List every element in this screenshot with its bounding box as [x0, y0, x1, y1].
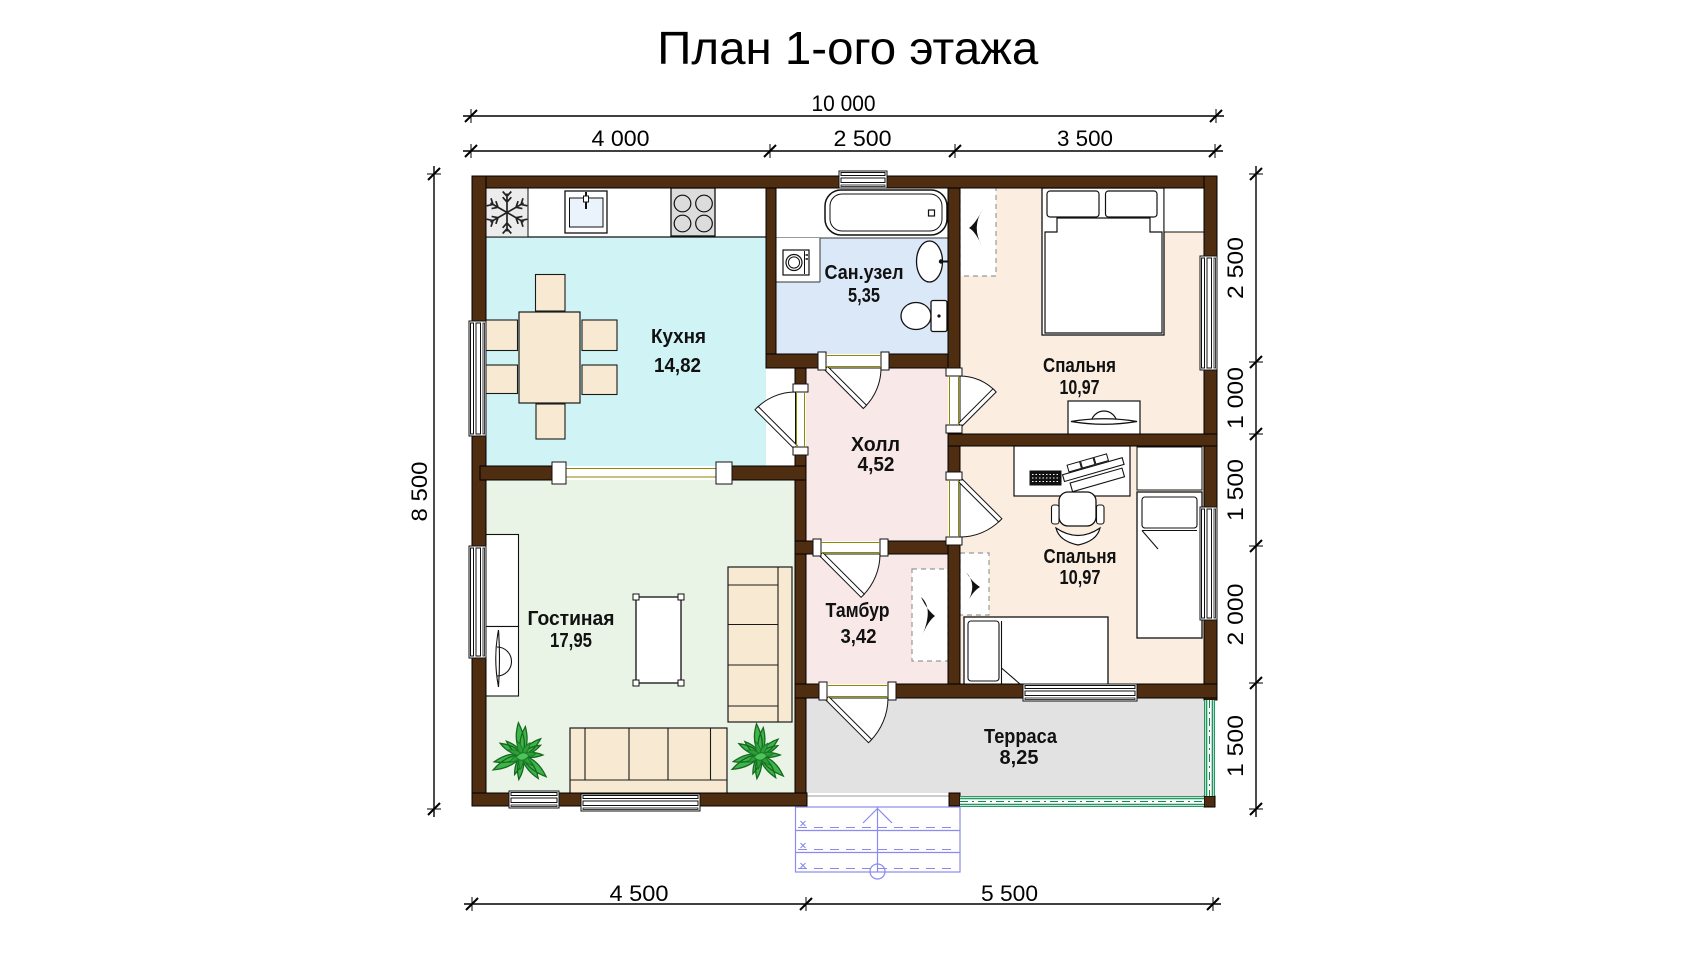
svg-text:5 500: 5 500 [981, 881, 1038, 906]
svg-text:Спальня: Спальня [1043, 355, 1116, 377]
svg-text:3 500: 3 500 [1057, 126, 1113, 151]
svg-text:10,97: 10,97 [1060, 567, 1101, 589]
svg-text:17,95: 17,95 [550, 630, 592, 652]
svg-text:План 1-ого этажа: План 1-ого этажа [657, 22, 1038, 74]
svg-text:4,52: 4,52 [858, 454, 895, 476]
svg-text:1 500: 1 500 [1223, 459, 1248, 521]
svg-text:4 500: 4 500 [610, 881, 669, 906]
svg-text:5,35: 5,35 [848, 285, 880, 307]
svg-text:Терраса: Терраса [984, 726, 1058, 748]
svg-text:Холл: Холл [851, 434, 900, 456]
svg-text:1 500: 1 500 [1223, 715, 1248, 777]
svg-text:Кухня: Кухня [651, 326, 706, 348]
svg-text:Сан.узел: Сан.узел [825, 262, 904, 284]
svg-text:2 500: 2 500 [834, 126, 892, 151]
svg-text:8 500: 8 500 [407, 462, 432, 522]
svg-text:10 000: 10 000 [812, 91, 876, 116]
svg-text:Гостиная: Гостиная [528, 608, 615, 630]
svg-text:14,82: 14,82 [654, 355, 701, 377]
svg-text:1 000: 1 000 [1223, 367, 1248, 429]
svg-text:2 000: 2 000 [1223, 584, 1248, 646]
svg-text:3,42: 3,42 [841, 626, 877, 648]
svg-text:10,97: 10,97 [1060, 377, 1100, 399]
svg-text:Тамбур: Тамбур [826, 600, 890, 622]
svg-text:4 000: 4 000 [592, 126, 650, 151]
svg-text:2 500: 2 500 [1223, 237, 1248, 299]
svg-text:Спальня: Спальня [1044, 546, 1117, 568]
svg-text:8,25: 8,25 [1000, 747, 1039, 769]
